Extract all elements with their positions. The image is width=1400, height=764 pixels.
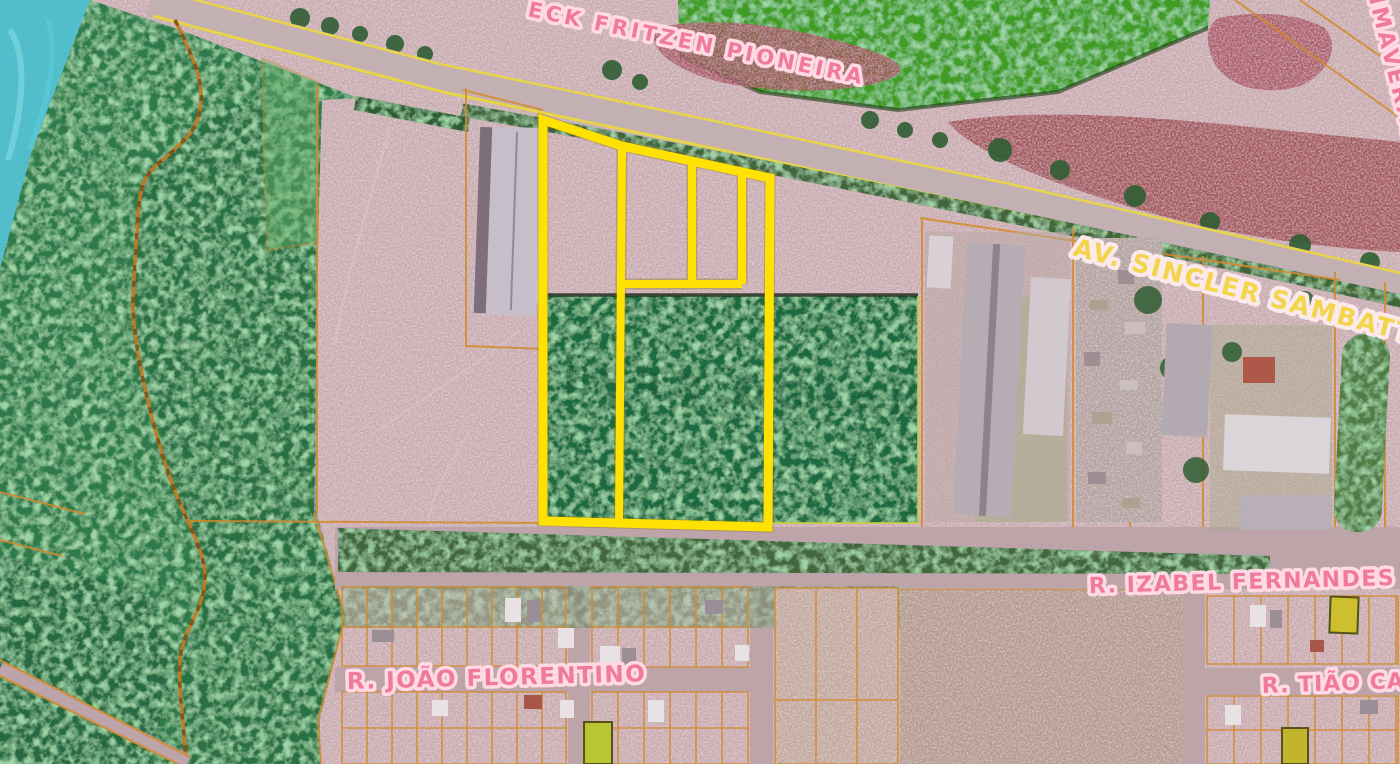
light-green-parcel: [262, 58, 318, 250]
warehouse-left: [474, 126, 548, 316]
map-viewport[interactable]: EBRO OGRAN: [0, 0, 1400, 764]
building-5: [1241, 495, 1331, 530]
open-field-parcel: [900, 590, 1183, 764]
building-3: [1161, 323, 1213, 437]
big-white-building: [1223, 414, 1331, 474]
open-lot: [775, 588, 898, 764]
aerial-map-canvas: EBRO OGRAN: [0, 0, 1400, 764]
red-roof-house: [1243, 357, 1275, 383]
warehouse-right-2: [1023, 277, 1071, 436]
small-building-1: [927, 235, 954, 288]
